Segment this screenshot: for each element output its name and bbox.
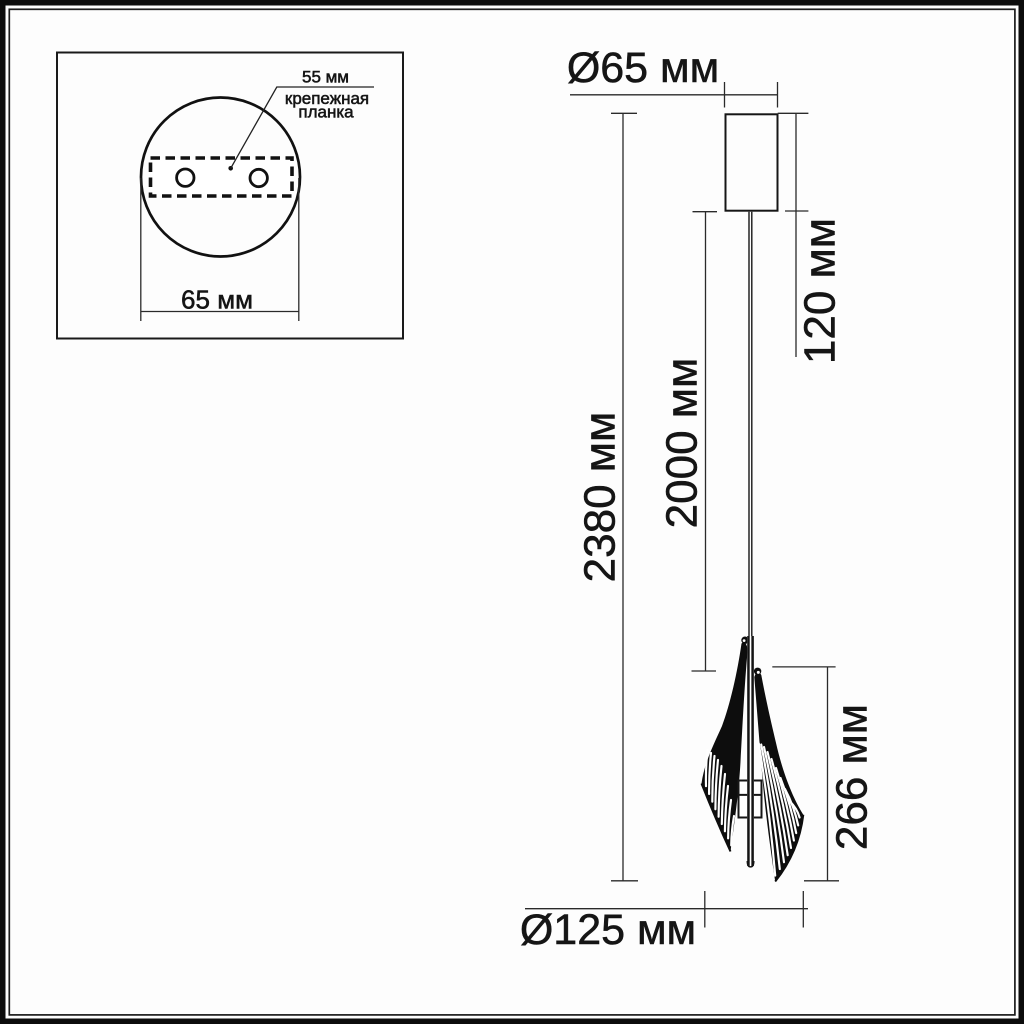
svg-text:55 мм: 55 мм (302, 68, 349, 87)
svg-text:Ø65 мм: Ø65 мм (567, 44, 719, 92)
svg-text:2000 мм: 2000 мм (657, 358, 706, 529)
svg-text:266 мм: 266 мм (827, 704, 876, 850)
svg-text:планка: планка (298, 103, 354, 122)
svg-text:2380 мм: 2380 мм (575, 412, 624, 583)
svg-text:65 мм: 65 мм (181, 285, 253, 315)
svg-text:120 мм: 120 мм (795, 218, 844, 364)
svg-text:Ø125 мм: Ø125 мм (520, 906, 696, 954)
